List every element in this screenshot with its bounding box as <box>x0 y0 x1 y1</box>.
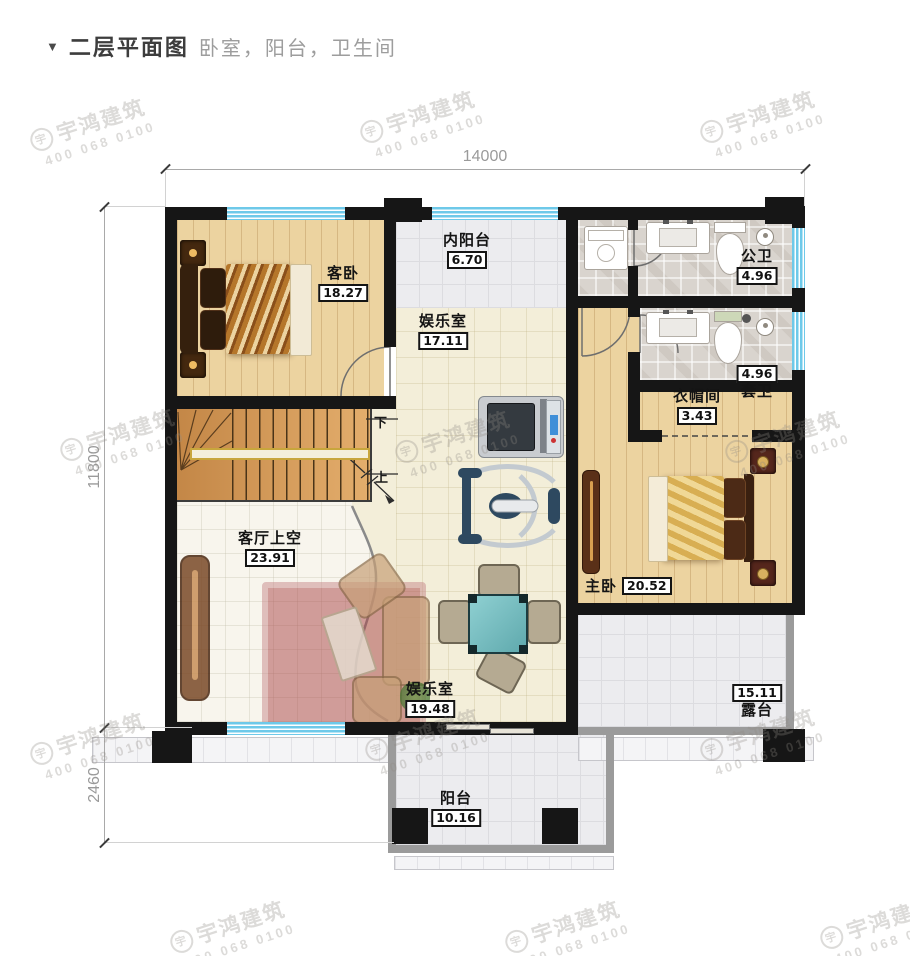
guest-bed-sheet <box>290 264 312 356</box>
dim-value-left-upper: 11800 <box>86 445 104 488</box>
wall <box>165 396 396 409</box>
room-name: 客卧 <box>318 265 368 282</box>
wall <box>566 296 805 308</box>
floor-drain <box>742 314 751 323</box>
watermark: 宇宇鸿建筑400 068 0100 <box>501 892 632 956</box>
watermark-logo-icon: 宇 <box>27 124 56 153</box>
pillow <box>200 268 226 308</box>
triangle-marker-icon: ▼ <box>46 39 59 54</box>
room-area: 6.70 <box>447 251 488 269</box>
shower-head <box>756 228 774 246</box>
label-ensuite-bath: 4.96 套卫 <box>737 363 778 400</box>
label-terrace: 15.11 露台 <box>732 682 782 719</box>
extension-line <box>104 206 166 207</box>
label-game-room-upper: 娱乐室 17.11 <box>418 313 468 350</box>
window <box>227 722 345 735</box>
watermark-logo-icon: 宇 <box>167 926 196 955</box>
wall <box>628 220 638 230</box>
window <box>227 207 345 220</box>
room-area: 23.91 <box>245 549 295 567</box>
wall <box>640 430 662 442</box>
eave-strip-balcony <box>394 856 614 870</box>
terrace-railing <box>578 727 794 735</box>
room-name: 内阳台 <box>443 232 491 249</box>
room-area: 3.43 <box>677 407 718 425</box>
armchair <box>352 676 402 724</box>
master-bed-sheet <box>648 476 668 562</box>
dim-line-top <box>165 169 805 170</box>
wall <box>384 207 396 347</box>
wall <box>566 603 805 615</box>
room-area: 20.52 <box>622 577 672 595</box>
column <box>392 808 428 844</box>
balcony-railing <box>388 845 614 853</box>
room-area: 19.48 <box>405 700 455 718</box>
wall <box>566 308 578 735</box>
column <box>542 808 578 844</box>
room-name: 客厅上空 <box>238 530 302 547</box>
watermark-logo-icon: 宇 <box>27 738 56 767</box>
label-game-room-lower: 娱乐室 19.48 <box>405 681 455 718</box>
room-area: 4.96 <box>737 365 778 383</box>
guest-bed <box>226 264 290 354</box>
chair <box>527 600 561 644</box>
watermark: 宇宇鸿建筑400 068 0100 <box>26 90 157 171</box>
pillow <box>722 520 746 560</box>
mahjong-table <box>468 594 528 654</box>
column <box>763 729 805 762</box>
floor-plan-page: ▼ 二层平面图 卧室，阳台，卫生间 14000 11800 2460 <box>0 0 910 956</box>
sliding-door <box>446 724 490 730</box>
nightstand <box>180 240 206 266</box>
dim-line-left <box>104 207 105 843</box>
pillow <box>200 310 226 350</box>
window <box>432 207 558 220</box>
room-name: 露台 <box>732 702 782 719</box>
column <box>152 731 192 763</box>
window <box>792 312 805 370</box>
label-guest-bedroom: 客卧 18.27 <box>318 265 368 302</box>
dim-value-top: 14000 <box>463 148 508 166</box>
label-balcony: 阳台 10.16 <box>431 790 481 827</box>
console-table <box>180 555 210 701</box>
column <box>765 197 805 224</box>
chair <box>478 564 520 598</box>
watermark: 宇宇鸿建筑400 068 0100 <box>166 892 297 956</box>
watermark-logo-icon: 宇 <box>502 926 531 955</box>
nightstand <box>750 560 776 586</box>
label-cloakroom: 衣帽间 3.43 <box>673 388 721 425</box>
stairs-down-label: 下 <box>374 412 387 431</box>
label-master-bedroom: 主卧 20.52 <box>585 577 672 595</box>
washing-machine <box>584 226 628 270</box>
nightstand <box>180 352 206 378</box>
wall <box>628 392 640 442</box>
stairs-up-label: 上 <box>375 467 388 486</box>
room-name: 主卧 <box>585 578 617 595</box>
sofa <box>382 596 430 686</box>
eave-strip-left <box>92 737 392 763</box>
column <box>384 198 422 222</box>
room-name: 阳台 <box>431 790 481 807</box>
dresser <box>582 470 600 574</box>
sliding-door <box>490 728 534 734</box>
treadmill <box>478 396 564 458</box>
balcony-railing <box>606 735 614 853</box>
sink-vanity <box>646 312 710 344</box>
stair-railing <box>190 448 370 460</box>
guest-bed-headboard <box>180 264 198 354</box>
wall <box>165 207 177 735</box>
extension-line <box>104 727 192 728</box>
room-name: 衣帽间 <box>673 388 721 405</box>
room-name: 娱乐室 <box>418 313 468 330</box>
window <box>792 228 805 288</box>
watermark-logo-icon: 宇 <box>57 434 86 463</box>
watermark: 宇宇鸿建筑400 068 0100 <box>696 82 827 163</box>
room-name: 娱乐室 <box>405 681 455 698</box>
extension-line <box>104 842 394 843</box>
chair <box>438 600 472 644</box>
wall <box>628 266 638 296</box>
extension-line <box>165 172 166 206</box>
plan-title: 二层平面图 <box>69 30 189 62</box>
toilet-tank <box>714 222 746 233</box>
nightstand <box>750 448 776 474</box>
toilet-tank <box>714 311 742 322</box>
master-bed <box>664 476 724 560</box>
watermark-logo-icon: 宇 <box>697 116 726 145</box>
extension-line <box>804 172 805 206</box>
wall <box>566 207 578 308</box>
shower-head <box>756 318 774 336</box>
pillow <box>722 478 746 518</box>
page-title: ▼ 二层平面图 卧室，阳台，卫生间 <box>46 30 397 62</box>
room-name: 公卫 <box>737 248 778 265</box>
room-area: 17.11 <box>418 332 468 350</box>
plan-subtitle: 卧室，阳台，卫生间 <box>199 32 397 61</box>
label-inner-balcony: 内阳台 6.70 <box>443 232 491 269</box>
room-area: 18.27 <box>318 284 368 302</box>
label-public-bath: 公卫 4.96 <box>737 248 778 285</box>
wall <box>628 352 640 380</box>
room-area: 15.11 <box>732 684 782 702</box>
wall <box>628 308 640 317</box>
watermark-logo-icon: 宇 <box>817 922 846 951</box>
room-area: 4.96 <box>737 267 778 285</box>
dim-value-left-lower: 2460 <box>86 767 104 803</box>
watermark: 宇宇鸿建筑400 068 0100 <box>816 888 910 956</box>
label-living-void: 客厅上空 23.91 <box>238 530 302 567</box>
room-name: 套卫 <box>737 383 778 400</box>
watermark-logo-icon: 宇 <box>357 116 386 145</box>
terrace-railing <box>786 615 794 735</box>
room-area: 10.16 <box>431 809 481 827</box>
sink-vanity <box>646 222 710 254</box>
